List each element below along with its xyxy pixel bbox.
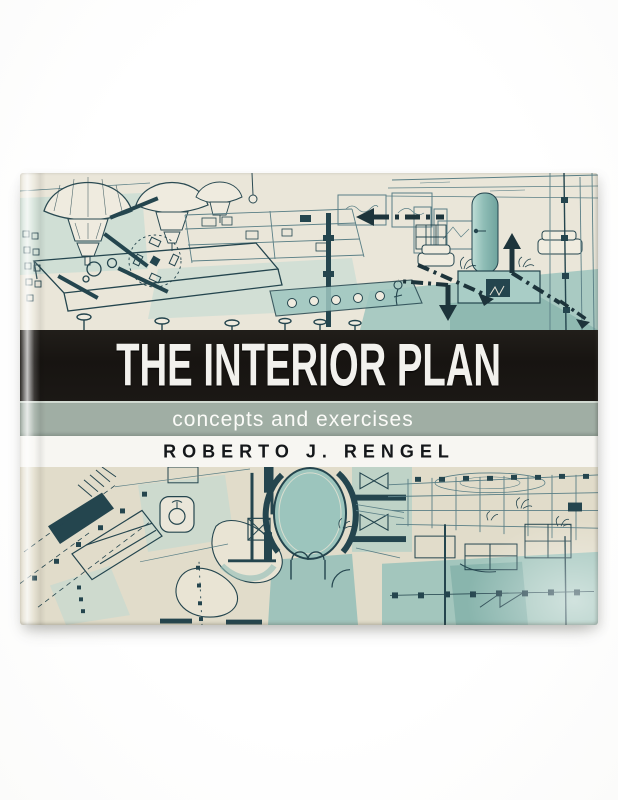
author-band: ROBERTO J. RENGEL — [20, 436, 598, 467]
book-cover: THE INTERIOR PLAN concepts and exercises… — [20, 173, 598, 625]
top-illustration — [20, 173, 598, 330]
book-title: THE INTERIOR PLAN — [117, 335, 502, 395]
book-author: ROBERTO J. RENGEL — [163, 440, 455, 462]
photo-background: THE INTERIOR PLAN concepts and exercises… — [0, 0, 618, 800]
book-subtitle: concepts and exercises — [172, 408, 413, 432]
subtitle-band: concepts and exercises — [20, 401, 598, 436]
top-illustration-svg — [20, 173, 598, 330]
bottom-illustration-svg — [20, 467, 598, 625]
bottom-illustration — [20, 467, 598, 625]
title-band: THE INTERIOR PLAN — [20, 330, 598, 401]
